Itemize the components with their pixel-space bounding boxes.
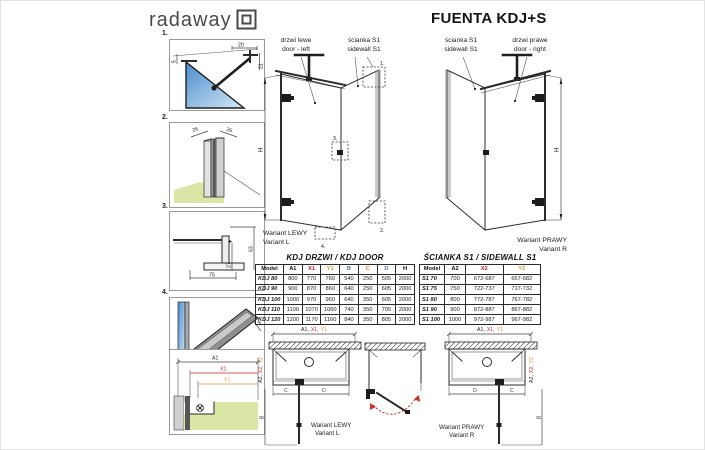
plan-right-caption-pl: Wariant PRAWY [439,424,484,431]
value-cell: 505 [377,275,396,285]
dim-d: D [322,388,326,394]
detail-2-box: 26 26 [169,122,265,208]
detail-1-box: 20 5 21 [169,39,265,111]
value-cell: 2000 [396,275,415,285]
profile-footprint [185,396,190,430]
value-cell: 640 [340,285,359,295]
value-cell: 717-732 [503,285,541,295]
column-header: X2 [466,265,504,275]
iso-right: H [429,29,571,262]
detail-2-number: 2. [162,114,168,121]
tray-outline [273,349,349,385]
value-cell: 770 [302,275,321,285]
value-cell: 705 [377,305,396,315]
value-cell: 605 [377,295,396,305]
value-cell: 960 [321,295,340,305]
column-header: H [396,265,415,275]
value-cell: 700 [445,275,466,285]
page-title: FUENTA KDJ+S [431,10,547,27]
model-cell: S1 80 [420,295,445,305]
value-cell: 2000 [396,285,415,295]
plan-top-dims: A1,X1,Y1 [477,327,503,333]
door-handle [337,150,343,155]
dim-h: H [258,148,265,152]
value-cell: 722-737 [466,285,504,295]
drain [305,358,314,367]
value-cell: 350 [358,295,377,305]
plan-right-caption-en: Variant R [449,432,475,439]
iso-right-drawing: H [429,29,571,257]
dim-63: 63 [249,246,255,252]
value-cell: 1070 [302,305,321,315]
model-cell: KDJ 110 [256,305,284,315]
model-cell: S1 90 [420,305,445,315]
plan-right-drawing: A1,X1,Y1 D C A2,X2,Y2 B Wariant PRAWY Va… [431,321,551,450]
radaway-logo: radaway [149,9,257,30]
column-header: B [340,265,359,275]
door-table: ModelA1X1Y1BCDHKDJ 808007707605402505052… [255,264,415,325]
table-row: S1 70700672-687667-682 [420,275,541,285]
value-cell: 250 [358,285,377,295]
table-row: KDJ 909008708606402506052000 [256,285,415,295]
value-cell: 870 [302,285,321,295]
value-cell: 605 [377,285,396,295]
callout-3: 3. [333,136,337,142]
dim-c: C [510,388,514,394]
column-header: X1 [302,265,321,275]
hinge-top [535,94,544,102]
plan-left-drawing: A1,X1,Y1 C D B A2,X2,Y2 Wariant LEWY Var… [257,321,373,450]
detail-1-number: 1. [162,30,168,37]
value-cell: 970 [302,295,321,305]
plan-left-caption-en: Variant L [315,430,340,437]
dim-b: B [260,415,266,419]
sidewall-table: ModelA2X2Y2S1 70700672-687667-682S1 7575… [419,264,541,325]
open-door [377,393,407,412]
hinge-top [282,94,291,102]
door-table-title: KDJ DRZWI / KDJ DOOR [255,253,415,262]
wall-hatch [365,343,425,350]
table-row: KDJ 808007707605402505052000 [256,275,415,285]
model-cell: S1 70 [420,275,445,285]
value-cell: 672-687 [466,275,504,285]
model-cell: KDJ 80 [256,275,284,285]
dim-y1: Y1 [224,378,230,384]
hinge-bracket [366,389,375,394]
sidewall-table-block: ŚCIANKA S1 / SIDEWALL S1 ModelA2X2Y2S1 7… [419,253,541,325]
column-header: D [377,265,396,275]
value-cell: 350 [358,305,377,315]
detail-3-drawing: 75 27 63 [170,212,264,290]
table-row: KDJ 10010009709606403506052000 [256,295,415,305]
value-cell: 800 [284,275,303,285]
dim-c: C [284,388,288,394]
sidewall-table-title: ŚCIANKA S1 / SIDEWALL S1 [419,253,541,262]
dim-h: H [554,148,561,152]
detail-3-box: 75 27 63 [169,211,265,291]
detail-2-drawing: 26 26 [170,123,264,207]
model-cell: KDJ 90 [256,285,284,295]
value-cell: 750 [445,285,466,295]
value-cell: 667-682 [503,275,541,285]
value-cell: 740 [340,305,359,315]
value-cell: 1000 [284,295,303,305]
column-header: A2 [445,265,466,275]
value-cell: 800 [445,295,466,305]
value-cell: 540 [340,275,359,285]
model-cell: KDJ 100 [256,295,284,305]
value-cell: 872-887 [466,305,504,315]
iso-left: H 1. 3. 2. 4. [255,29,397,260]
door-handle [405,410,410,414]
value-cell: 900 [445,305,466,315]
wall-strip [174,396,184,430]
value-cell: 2000 [396,305,415,315]
callout-1-box [363,67,385,87]
detail-1-drawing: 20 5 21 [170,40,264,110]
table-row: S1 75750722-737717-732 [420,285,541,295]
dim-d: D [473,388,477,394]
door-handle [483,150,489,155]
door-table-block: KDJ DRZWI / KDJ DOOR ModelA1X1Y1BCDHKDJ … [255,253,415,325]
column-header: Model [420,265,445,275]
dim-5: 5 [172,60,178,63]
callout-2: 2. [380,228,384,234]
drain [483,358,492,367]
dim-x1: X1 [220,367,226,373]
dim-26-left: 26 [192,126,200,134]
dim-20: 20 [238,43,244,49]
iso-left-caption: Wariant LEWY Variant L [263,230,307,247]
detail-3-number: 3. [162,203,168,210]
dim-b: B [537,415,543,419]
iso-left-drawing: H 1. 3. 2. 4. [255,29,397,255]
value-cell: 772-787 [466,295,504,305]
column-header: Y1 [321,265,340,275]
value-cell: 2000 [396,315,415,325]
plan-right: A1,X1,Y1 D C A2,X2,Y2 B Wariant PRAWY Va… [431,321,551,450]
mount-detail-box: A1 X1 Y1 [169,349,265,435]
logo-text: radaway [149,10,232,30]
door-swing [357,333,433,434]
detail-4-number: 4. [162,289,168,296]
plan-side-dims: A2,X2,Y2 [529,357,535,383]
swing-arc [373,397,417,414]
value-cell: 900 [284,285,303,295]
value-cell: 860 [321,285,340,295]
value-cell: 640 [340,295,359,305]
door-swing-drawing [357,333,433,429]
column-header: A1 [284,265,303,275]
column-header: Model [256,265,284,275]
table-row: KDJ 1101100107010607403507052000 [256,305,415,315]
wall-hatch [445,342,537,349]
value-cell: 867-882 [503,305,541,315]
iso-right-caption: Wariant PRAWY Variant R [483,237,567,254]
plan-left: A1,X1,Y1 C D B A2,X2,Y2 Wariant LEWY Var… [257,321,373,450]
value-cell: 805 [377,315,396,325]
logo-square-icon [236,9,257,30]
value-cell: 250 [358,275,377,285]
value-cell: 767-782 [503,295,541,305]
plan-side-dims: A2,X2,Y2 [258,357,264,383]
dim-75: 75 [209,273,215,279]
model-cell: S1 75 [420,285,445,295]
column-header: C [358,265,377,275]
column-header: Y2 [503,265,541,275]
hinge-bottom [535,198,544,206]
datasheet-page: radaway FUENTA KDJ+S 1. 20 5 [0,0,705,450]
table-row: S1 90900872-887867-882 [420,305,541,315]
plan-left-caption-pl: Wariant LEWY [311,422,351,429]
value-cell: 1060 [321,305,340,315]
plan-top-dims: A1,X1,Y1 [301,327,327,333]
value-cell: 760 [321,275,340,285]
wall-hatch [269,342,361,349]
dim-27: 27 [227,262,233,268]
value-cell: 1100 [284,305,303,315]
hinge-bottom [282,198,291,206]
dim-a1: A1 [212,356,218,362]
value-cell: 2000 [396,295,415,305]
mount-detail-drawing: A1 X1 Y1 [170,350,264,434]
callout-1: 1. [380,61,384,67]
table-row: S1 80800772-787767-782 [420,295,541,305]
callout-4: 4. [321,244,325,250]
